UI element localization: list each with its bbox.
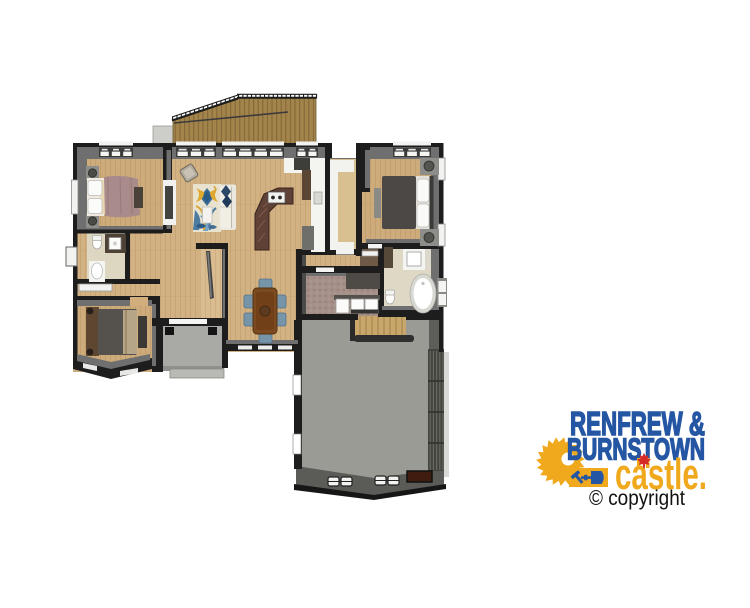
svg-text:© copyright: © copyright xyxy=(589,487,685,510)
